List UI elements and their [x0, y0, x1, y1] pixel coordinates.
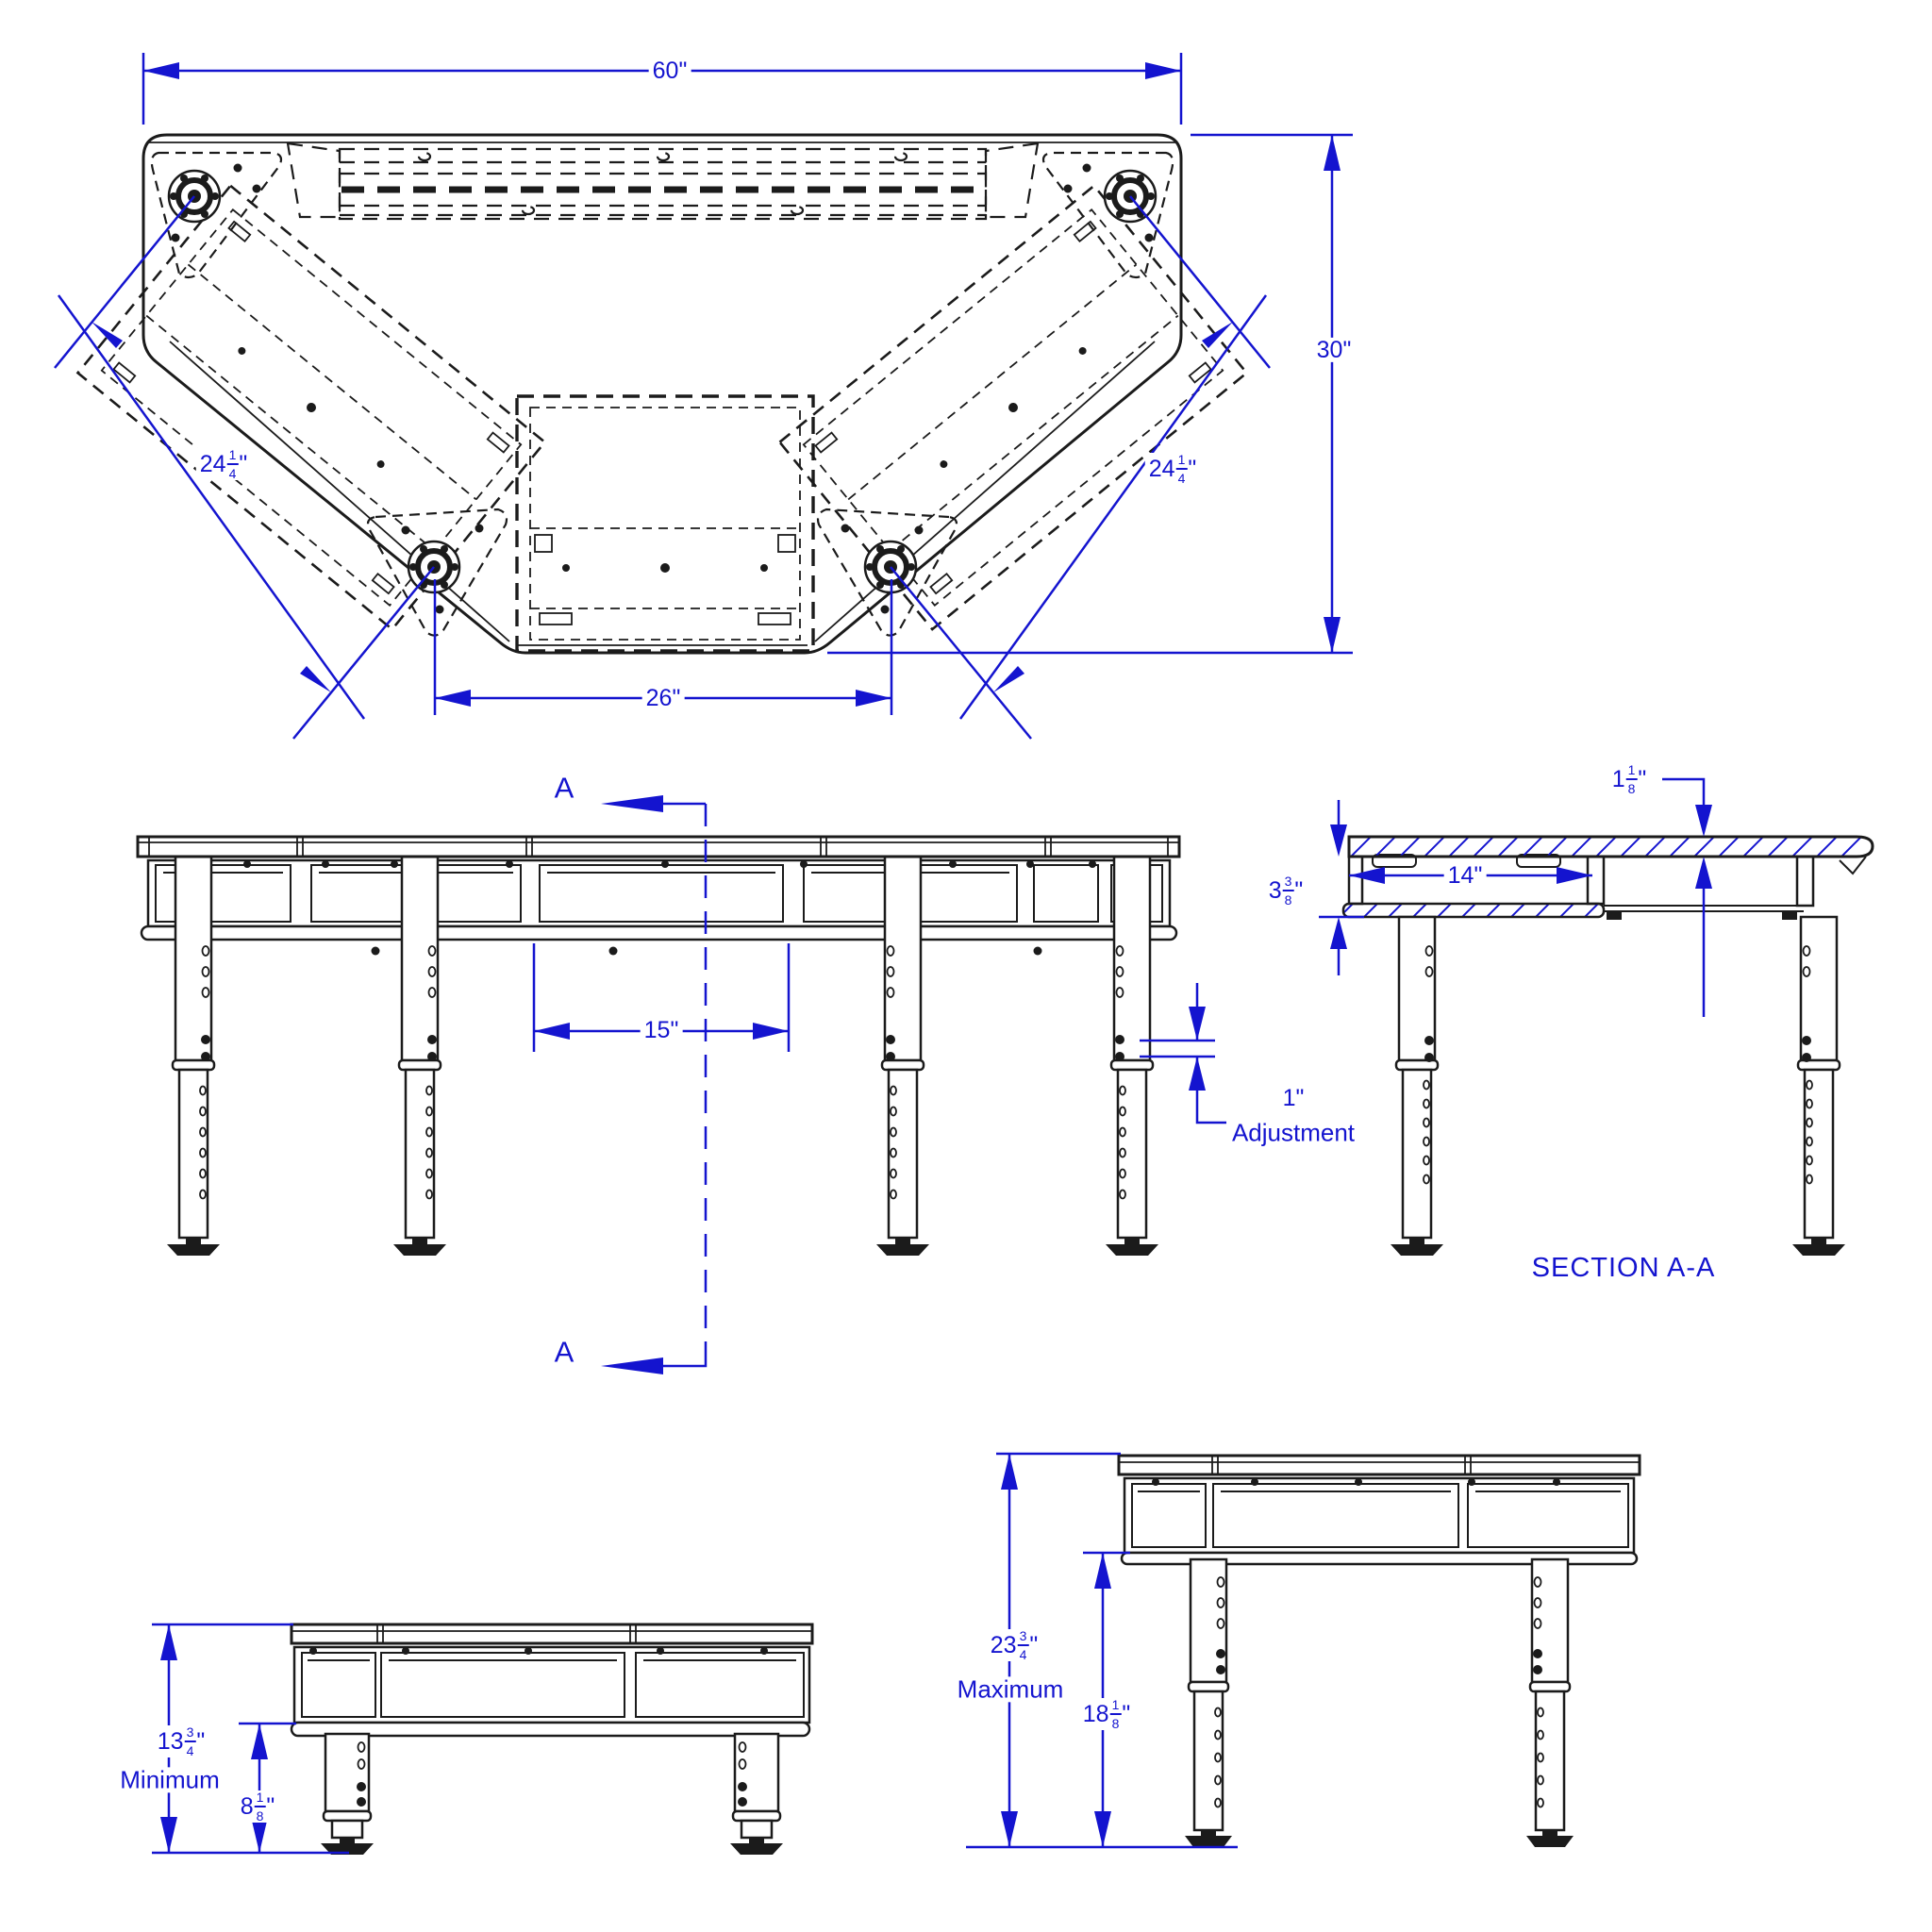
dim-side-left: 2414" — [196, 448, 251, 480]
front-view — [138, 795, 1226, 1374]
center-module — [517, 396, 813, 651]
section-dim-thickness — [1662, 779, 1712, 1017]
technical-drawing-page: 60" 30" 2414" 2414" 26" A A 15" 1" Adjus… — [0, 0, 1932, 1932]
dim-min-clearance-fraction: 18 — [255, 1790, 266, 1823]
dim-side-right-fraction: 14 — [1176, 453, 1188, 485]
section-legs — [1391, 917, 1845, 1256]
dim-bottom-width: 26" — [642, 686, 685, 710]
dim-max-clearance-fraction: 18 — [1110, 1698, 1122, 1730]
minimum-label: Minimum — [116, 1767, 223, 1792]
section-tabletop — [1349, 837, 1873, 874]
section-view — [1319, 779, 1873, 1256]
dim-min-overall-fraction: 34 — [185, 1725, 196, 1757]
min-legs — [321, 1734, 783, 1855]
top-view-dim-arrows — [92, 62, 1341, 707]
rear-channel-assembly — [288, 143, 1038, 219]
corner-plates — [152, 153, 1173, 636]
tabletop-outline — [143, 135, 1181, 653]
maximum-view — [966, 1454, 1640, 1847]
max-legs — [1185, 1559, 1574, 1847]
dim-apron-depth: 338" — [1265, 874, 1307, 907]
front-apron — [142, 860, 1176, 956]
section-marker-bottom: A — [551, 1338, 578, 1369]
dim-max-clearance: 1818" — [1079, 1698, 1134, 1730]
dim-section-opening: 14" — [1444, 863, 1487, 888]
adjustment-label: Adjustment — [1228, 1120, 1358, 1145]
dim-side-left-whole: 24 — [200, 452, 226, 476]
front-tabletop — [138, 837, 1179, 857]
dim-side-right: 2414" — [1145, 453, 1200, 485]
dim-center-opening: 15" — [641, 1018, 683, 1042]
section-apron — [1343, 855, 1813, 920]
max-tabletop — [1119, 1456, 1640, 1474]
dim-depth: 30" — [1313, 338, 1356, 362]
section-title: SECTION A-A — [1528, 1254, 1720, 1282]
min-apron — [291, 1647, 809, 1736]
dim-apron-depth-fraction: 38 — [1283, 874, 1294, 907]
drawing-canvas — [0, 0, 1932, 1932]
front-dim-adjustment — [1140, 983, 1226, 1123]
dim-max-overall: 2334" — [987, 1629, 1041, 1661]
dim-min-overall: 1334" — [154, 1725, 208, 1757]
dim-top-width: 60" — [649, 58, 691, 83]
dim-adjustment-value: 1" — [1279, 1086, 1308, 1110]
section-marker-top: A — [551, 774, 578, 805]
dim-min-clearance: 818" — [237, 1790, 279, 1823]
maximum-label: Maximum — [954, 1676, 1068, 1702]
dim-top-thickness-fraction: 18 — [1626, 763, 1638, 795]
dim-top-thickness: 118" — [1608, 763, 1651, 795]
max-apron — [1122, 1478, 1637, 1564]
top-view — [55, 53, 1353, 739]
min-tabletop — [291, 1624, 812, 1643]
dim-side-left-fraction: 14 — [227, 448, 239, 480]
dim-max-overall-fraction: 34 — [1018, 1629, 1029, 1661]
